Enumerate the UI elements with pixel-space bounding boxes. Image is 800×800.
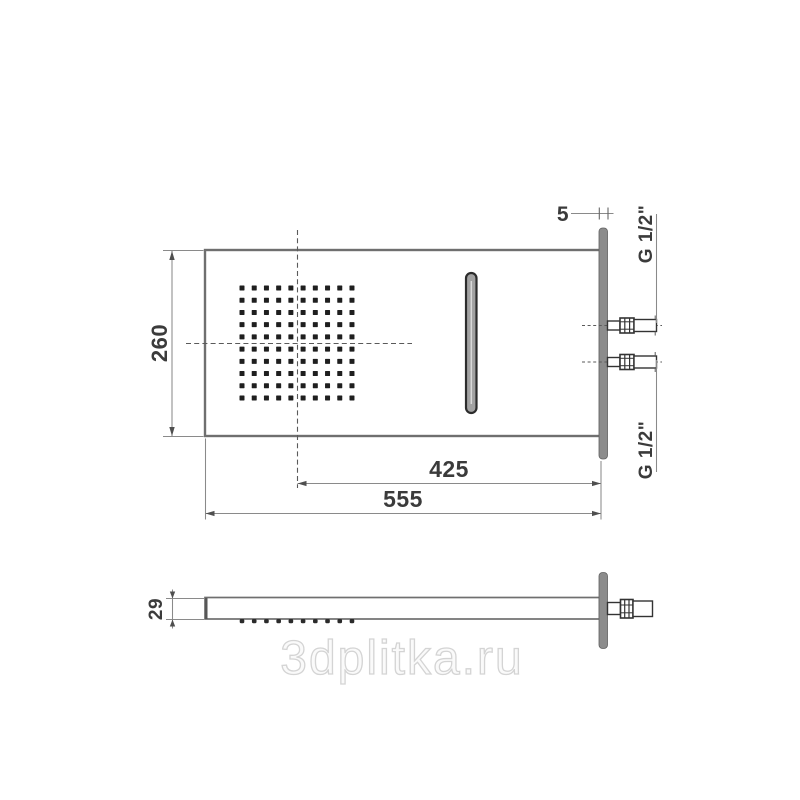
nozzle-dot xyxy=(349,286,354,291)
nozzle-dot xyxy=(264,298,269,303)
nozzle-dot xyxy=(301,310,306,315)
nozzle-dot xyxy=(252,383,257,388)
nozzle-dot xyxy=(325,286,330,291)
nozzle-dot xyxy=(276,359,281,364)
nozzle-dot xyxy=(313,395,318,400)
nozzle-dot xyxy=(301,359,306,364)
nozzle-dot xyxy=(313,383,318,388)
nozzle-dot xyxy=(288,310,293,315)
arrowhead xyxy=(169,427,174,436)
nozzle-dot xyxy=(337,383,342,388)
nozzle-dot xyxy=(252,298,257,303)
dim-plate-label: 5 xyxy=(557,203,569,226)
thread-label-top: G 1/2" xyxy=(636,205,657,323)
nozzle-dot xyxy=(349,359,354,364)
nozzle-dot xyxy=(288,383,293,388)
nozzle-dot xyxy=(301,371,306,376)
nozzle-dot xyxy=(337,347,342,352)
nozzle-dot xyxy=(313,359,318,364)
nozzle-dot xyxy=(240,310,245,315)
nozzle-dot xyxy=(301,334,306,339)
nozzle-dot xyxy=(288,359,293,364)
nozzle-dot xyxy=(337,298,342,303)
dim-555-label: 555 xyxy=(383,486,423,512)
nozzle-dot xyxy=(240,347,245,352)
nozzle-dot xyxy=(349,383,354,388)
tooth xyxy=(240,619,245,623)
nozzle-dot xyxy=(313,286,318,291)
arrowhead xyxy=(169,251,174,260)
nozzle-dot xyxy=(349,298,354,303)
nozzle-dot xyxy=(240,359,245,364)
nozzle-dot xyxy=(264,371,269,376)
nozzle-dot xyxy=(313,371,318,376)
tooth xyxy=(252,619,257,623)
nozzle-dot xyxy=(276,383,281,388)
nozzle-dot xyxy=(252,395,257,400)
thread-label-top-text: G 1/2" xyxy=(636,205,657,263)
nozzle-dot xyxy=(325,359,330,364)
nozzle-dot xyxy=(301,322,306,327)
nozzle-dot xyxy=(288,371,293,376)
nozzle-dot xyxy=(337,359,342,364)
nozzle-dot xyxy=(264,286,269,291)
nozzle-dot xyxy=(252,359,257,364)
fitting-hex-nut xyxy=(621,600,634,619)
dim-height-label: 260 xyxy=(147,324,172,362)
arrowhead xyxy=(206,511,215,516)
tooth xyxy=(313,619,318,623)
arrowhead xyxy=(170,592,175,599)
inlet-fitting-side xyxy=(608,600,653,619)
tooth xyxy=(337,619,342,623)
fitting-thread xyxy=(634,320,657,332)
dim-plate-5: 5 xyxy=(557,203,614,226)
nozzle-dot xyxy=(325,347,330,352)
fitting-hex-nut xyxy=(620,355,634,370)
nozzle-dot xyxy=(240,383,245,388)
nozzle-dot xyxy=(301,298,306,303)
nozzle-dot xyxy=(313,334,318,339)
nozzle-dot xyxy=(252,286,257,291)
nozzle-dot xyxy=(313,310,318,315)
nozzle-dot xyxy=(288,322,293,327)
front-view: 260 5 G 1/2" G 1/2" 425 xyxy=(147,203,662,520)
nozzle-dot xyxy=(325,383,330,388)
nozzle-dot xyxy=(276,286,281,291)
nozzle-dot xyxy=(240,371,245,376)
nozzle-dot xyxy=(325,395,330,400)
dim-425: 425 xyxy=(298,456,602,520)
nozzle-dot xyxy=(337,310,342,315)
fitting-thread xyxy=(633,601,653,617)
nozzle-dot xyxy=(301,395,306,400)
thread-label-bottom-text: G 1/2" xyxy=(636,421,657,479)
nozzle-dot xyxy=(337,286,342,291)
nozzle-dot xyxy=(288,334,293,339)
nozzle-dot xyxy=(337,371,342,376)
nozzle-dot xyxy=(264,359,269,364)
nozzle-dot xyxy=(276,395,281,400)
nozzle-dot xyxy=(264,395,269,400)
fitting-thread xyxy=(634,356,657,368)
nozzle-dot xyxy=(252,371,257,376)
nozzle-dot xyxy=(276,310,281,315)
nozzle-dot xyxy=(337,322,342,327)
nozzle-dot xyxy=(252,334,257,339)
nozzle-dot xyxy=(349,395,354,400)
nozzle-dot xyxy=(252,322,257,327)
tooth xyxy=(264,619,269,623)
nozzle-dot xyxy=(240,286,245,291)
dim-425-label: 425 xyxy=(429,456,469,482)
drawing-canvas: 260 5 G 1/2" G 1/2" 425 xyxy=(0,0,800,800)
nozzle-dot xyxy=(264,322,269,327)
nozzle-dot xyxy=(325,334,330,339)
nozzle-dot xyxy=(240,334,245,339)
watermark-text: 3dplitka.ru xyxy=(280,632,523,685)
nozzle-dot xyxy=(288,395,293,400)
arrowhead xyxy=(170,620,175,627)
thread-label-bottom: G 1/2" xyxy=(636,360,657,479)
nozzle-dot xyxy=(288,347,293,352)
mounting-plate-side xyxy=(599,573,608,649)
nozzle-dot xyxy=(240,322,245,327)
fitting-stub xyxy=(608,603,621,615)
nozzle-dot xyxy=(264,347,269,352)
nozzle-dot xyxy=(349,371,354,376)
nozzle-dot xyxy=(337,334,342,339)
tooth xyxy=(276,619,281,623)
dim-555: 555 xyxy=(206,439,602,520)
nozzle-dot xyxy=(313,298,318,303)
nozzle-dot xyxy=(325,322,330,327)
fitting-stub xyxy=(608,321,621,330)
nozzle-dot xyxy=(301,286,306,291)
arrowhead xyxy=(592,511,601,516)
nozzle-dot xyxy=(349,322,354,327)
nozzle-dot xyxy=(276,322,281,327)
nozzle-dot xyxy=(264,310,269,315)
nozzle-dot xyxy=(276,347,281,352)
nozzle-dot xyxy=(337,395,342,400)
nozzle-dot xyxy=(349,310,354,315)
nozzle-dot xyxy=(301,383,306,388)
nozzle-dot xyxy=(276,371,281,376)
nozzle-dot xyxy=(252,310,257,315)
dim-depth-29: 29 xyxy=(146,590,204,629)
technical-drawing: 260 5 G 1/2" G 1/2" 425 xyxy=(0,0,800,800)
nozzle-dot xyxy=(349,347,354,352)
nozzle-dot xyxy=(240,395,245,400)
dim-depth-label: 29 xyxy=(146,598,167,620)
nozzle-dot xyxy=(301,347,306,352)
nozzle-dot xyxy=(264,383,269,388)
nozzle-dot xyxy=(288,286,293,291)
nozzle-dot xyxy=(288,298,293,303)
panel-profile xyxy=(205,598,600,620)
nozzle-dot xyxy=(325,298,330,303)
nozzle-dot xyxy=(349,334,354,339)
tooth xyxy=(350,619,355,623)
nozzle-dot xyxy=(325,310,330,315)
fitting-stub xyxy=(608,358,621,367)
nozzle-dot xyxy=(313,347,318,352)
arrowhead xyxy=(592,481,601,486)
nozzle-dot xyxy=(276,334,281,339)
mounting-plate xyxy=(599,228,608,459)
tooth xyxy=(325,619,330,623)
nozzle-dot xyxy=(313,322,318,327)
nozzle-dot xyxy=(325,371,330,376)
nozzle-dot xyxy=(276,298,281,303)
nozzle-dot xyxy=(264,334,269,339)
arrowhead xyxy=(298,481,307,486)
tooth xyxy=(289,619,294,623)
nozzle-dot xyxy=(240,298,245,303)
tooth xyxy=(301,619,306,623)
fitting-hex-nut xyxy=(620,318,634,333)
nozzle-dot xyxy=(252,347,257,352)
